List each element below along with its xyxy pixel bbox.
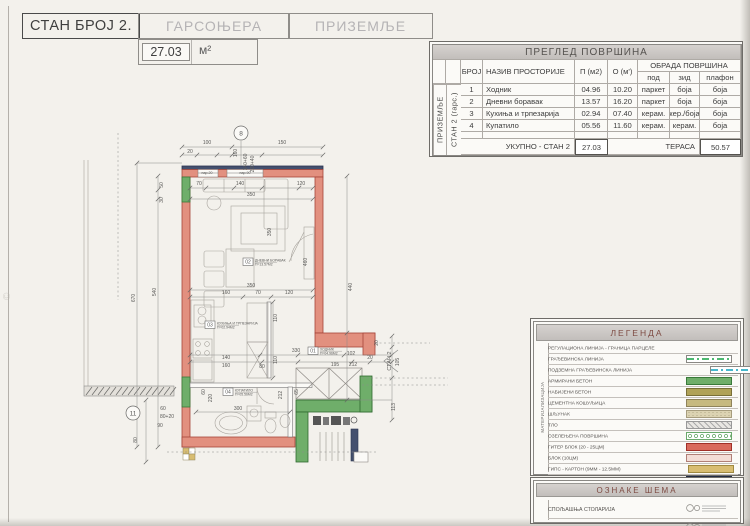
sofa [203,179,265,192]
legend-item: АРМИРАНИ БЕТОН [548,376,738,387]
wall-bottom [182,437,295,447]
legend-item: РЕГУЛАЦИОНА ЛИНИЈА - ГРАНИЦА ПАРЦЕЛЕ [548,343,738,354]
dim-label: 220+40 [250,155,256,172]
dim-label: 330 [292,348,301,354]
step [354,452,368,462]
dim-label: 195 [331,362,340,368]
legend-rows: РЕГУЛАЦИОНА ЛИНИЈА - ГРАНИЦА ПАРЦЕЛЕГРАЂ… [548,343,738,472]
washing-machine [247,406,261,421]
legend-swatch-fill-olive [686,388,732,396]
dim-label: пар.20 [202,171,213,175]
dim-label: 220 [208,394,214,403]
legend-swatch-fill-gold [688,465,734,473]
legend-item-label: ШЉУНАК [548,411,620,416]
legend-swatch-line-cyan [710,366,750,374]
dim-label: 105 [395,358,401,367]
legend-item: ГРАЂЕВИНСКА ЛИНИЈА [548,354,738,365]
dim-label: 02 [245,260,251,266]
dim-label: 440 [348,283,354,292]
legend: ЛЕГЕНДА МАТЕРИЈАЛИЗАЦИЈА РЕГУЛАЦИОНА ЛИН… [530,318,744,476]
dim-label: 70 [255,290,261,296]
dim-label: 11 [130,410,137,417]
dim-label: 01 [310,349,316,355]
dim-label: 140 [222,355,231,361]
oznake-label: СПОЉАШЊА СТОЛАРИЈА [548,506,622,512]
dim-label: 120 [297,181,306,187]
legend-swatch-fill-cement [686,399,732,407]
dim-label: 300 [234,406,243,412]
dim-label: СТАН 2 [387,351,393,370]
dim-label: 102 [347,351,356,357]
dim-label: 65 [294,389,300,395]
legend-item: ШЉУНАК [548,409,738,420]
legend-item: ТЛО [548,420,738,431]
dim-label: 212 [349,362,358,368]
dim-label: 110 [273,356,279,364]
legend-item-label: АРМИРАНИ БЕТОН [548,378,620,383]
door-arc [257,387,274,404]
legend-item-label: ПОДЗЕМНА ГРАЂЕВИНСКА ЛИНИЈА [548,367,632,372]
legend-item: БЛОК (10ЦМ) [548,453,738,464]
dim-label: 350 [247,283,256,289]
joinery-schemes: ОЗНАКЕ ШЕМА СПОЉАШЊА СТОЛАРИЈАУНУТРАШЊА … [530,477,744,524]
legend-swatch-fill-gravel [686,410,732,418]
legend-item-label: БЛОК (10ЦМ) [548,455,620,460]
legend-item-label: ОЗЕЛЕЊЕНА ПОВРШИНА [548,433,620,438]
dim-label: 8 [239,130,243,137]
floor-plan-sheet: { "header": { "apartment": "СТАН БРОЈ 2.… [0,0,750,526]
dim-label: 110 [273,314,279,322]
legend-item-label: РЕГУЛАЦИОНА ЛИНИЈА - ГРАНИЦА ПАРЦЕЛЕ [548,345,655,350]
legend-item-label: ГИПС - КАРТОН (9ММ - 12.5ММ) [548,466,621,471]
dim-label: 90 [157,423,163,429]
dim-label: 350 [267,228,273,237]
dim-label: 60 [201,389,207,395]
legend-item: ГИПС - КАРТОН (9ММ - 12.5ММ) [548,464,738,475]
legend-item: НАБИЈЕНИ БЕТОН [548,387,738,398]
sink [198,307,206,315]
concrete-column [182,377,190,407]
dim-label: 100 [203,140,212,146]
dining-table [226,249,254,287]
gips-marker [183,448,195,460]
legend-item: ОЗЕЛЕЊЕНА ПОВРШИНА [548,431,738,442]
legend-item-label: ТЛО [548,422,620,427]
dim-label: 140 [236,181,245,187]
dim-label: 670 [131,294,137,303]
legend-item-label: НАБИЈЕНИ БЕТОН [548,389,620,394]
dim-label: 20 [374,340,380,346]
dim-label: 350 [247,192,256,198]
oznake-row: СПОЉАШЊА СТОЛАРИЈА [548,500,738,519]
dim-label: 460 [303,258,309,267]
dim-label: П=04.96М2 [320,351,338,355]
legend-swatch-fill-red [686,443,732,451]
oznake-rows: СПОЉАШЊА СТОЛАРИЈАУНУТРАШЊА СТОЛАРИЈА [548,500,738,520]
kitchen-counter [191,300,214,382]
legend-item-label: ГРАЂЕВИНСКА ЛИНИЈА [548,356,620,361]
legend-swatch-fill-green [686,377,732,385]
dim-label: 30 [159,197,165,203]
dim-label: 540 [152,288,158,297]
legend-swatch-fill-pink [686,454,732,462]
legend-item-label: ЦЕМЕНТНА КОШУЉИЦА [548,400,620,405]
legend-swatch-hatch-gray [686,421,732,429]
dim-label: 04 [225,390,231,396]
chair [204,251,224,267]
legend-title: ЛЕГЕНДА [536,324,738,341]
cabinet [193,360,212,380]
legend-swatch-line-green [686,355,732,363]
dim-label: 20 [187,149,193,155]
site-boundary-lines [84,160,88,386]
dim-label: 80+20 [160,414,174,420]
side-table [207,196,221,210]
dim-label: 20 [367,355,373,361]
dim-label: П=02.94М2 [217,325,235,329]
dim-label: 160 [222,363,231,369]
joinery-symbol-icon [682,500,738,518]
dim-label: П=13.57М2 [255,262,273,266]
dim-label: пар.90 [240,171,251,175]
legend-item: ГИТЕР БЛОК (20 - 25ЦМ) [548,442,738,453]
legend-item: ПОДЗЕМНА ГРАЂЕВИНСКА ЛИНИЈА [548,365,738,376]
dim-label: 60 [160,406,166,412]
dim-label: П=05.56М2 [235,392,253,396]
dim-label: 160 [233,149,239,158]
legend-swatch-dots-green [686,432,732,440]
wall-right [315,177,323,333]
legend-item: ЦЕМЕНТНА КОШУЉИЦА [548,398,738,409]
dim-label: 03 [207,323,213,329]
dim-label: 212 [278,391,284,400]
oznake-title: ОЗНАКЕ ШЕМА [536,483,738,497]
door-arc [291,234,313,261]
dim-label: 80 [133,437,139,443]
terrace-equipment [313,416,368,462]
dim-label: 150 [278,140,287,146]
oznake-row: УНУТРАШЊА СТОЛАРИЈА [548,519,738,526]
dim-label: 160 [222,290,231,296]
chair [204,271,224,287]
toilet [265,419,276,433]
sofa-corner [264,179,288,229]
dim-label: 50 [159,182,165,188]
legend-item-label: ГИТЕР БЛОК (20 - 25ЦМ) [548,444,620,449]
joinery-symbol-icon [682,519,738,526]
toilet-tank [265,412,276,418]
dim-label: 140+60 [243,153,249,170]
dim-label: 80 [259,364,265,370]
dim-label: 113 [391,403,397,411]
existing-wall-hatch [84,386,176,396]
dim-label: 120 [285,290,294,296]
dim-label: 70 [196,181,202,187]
